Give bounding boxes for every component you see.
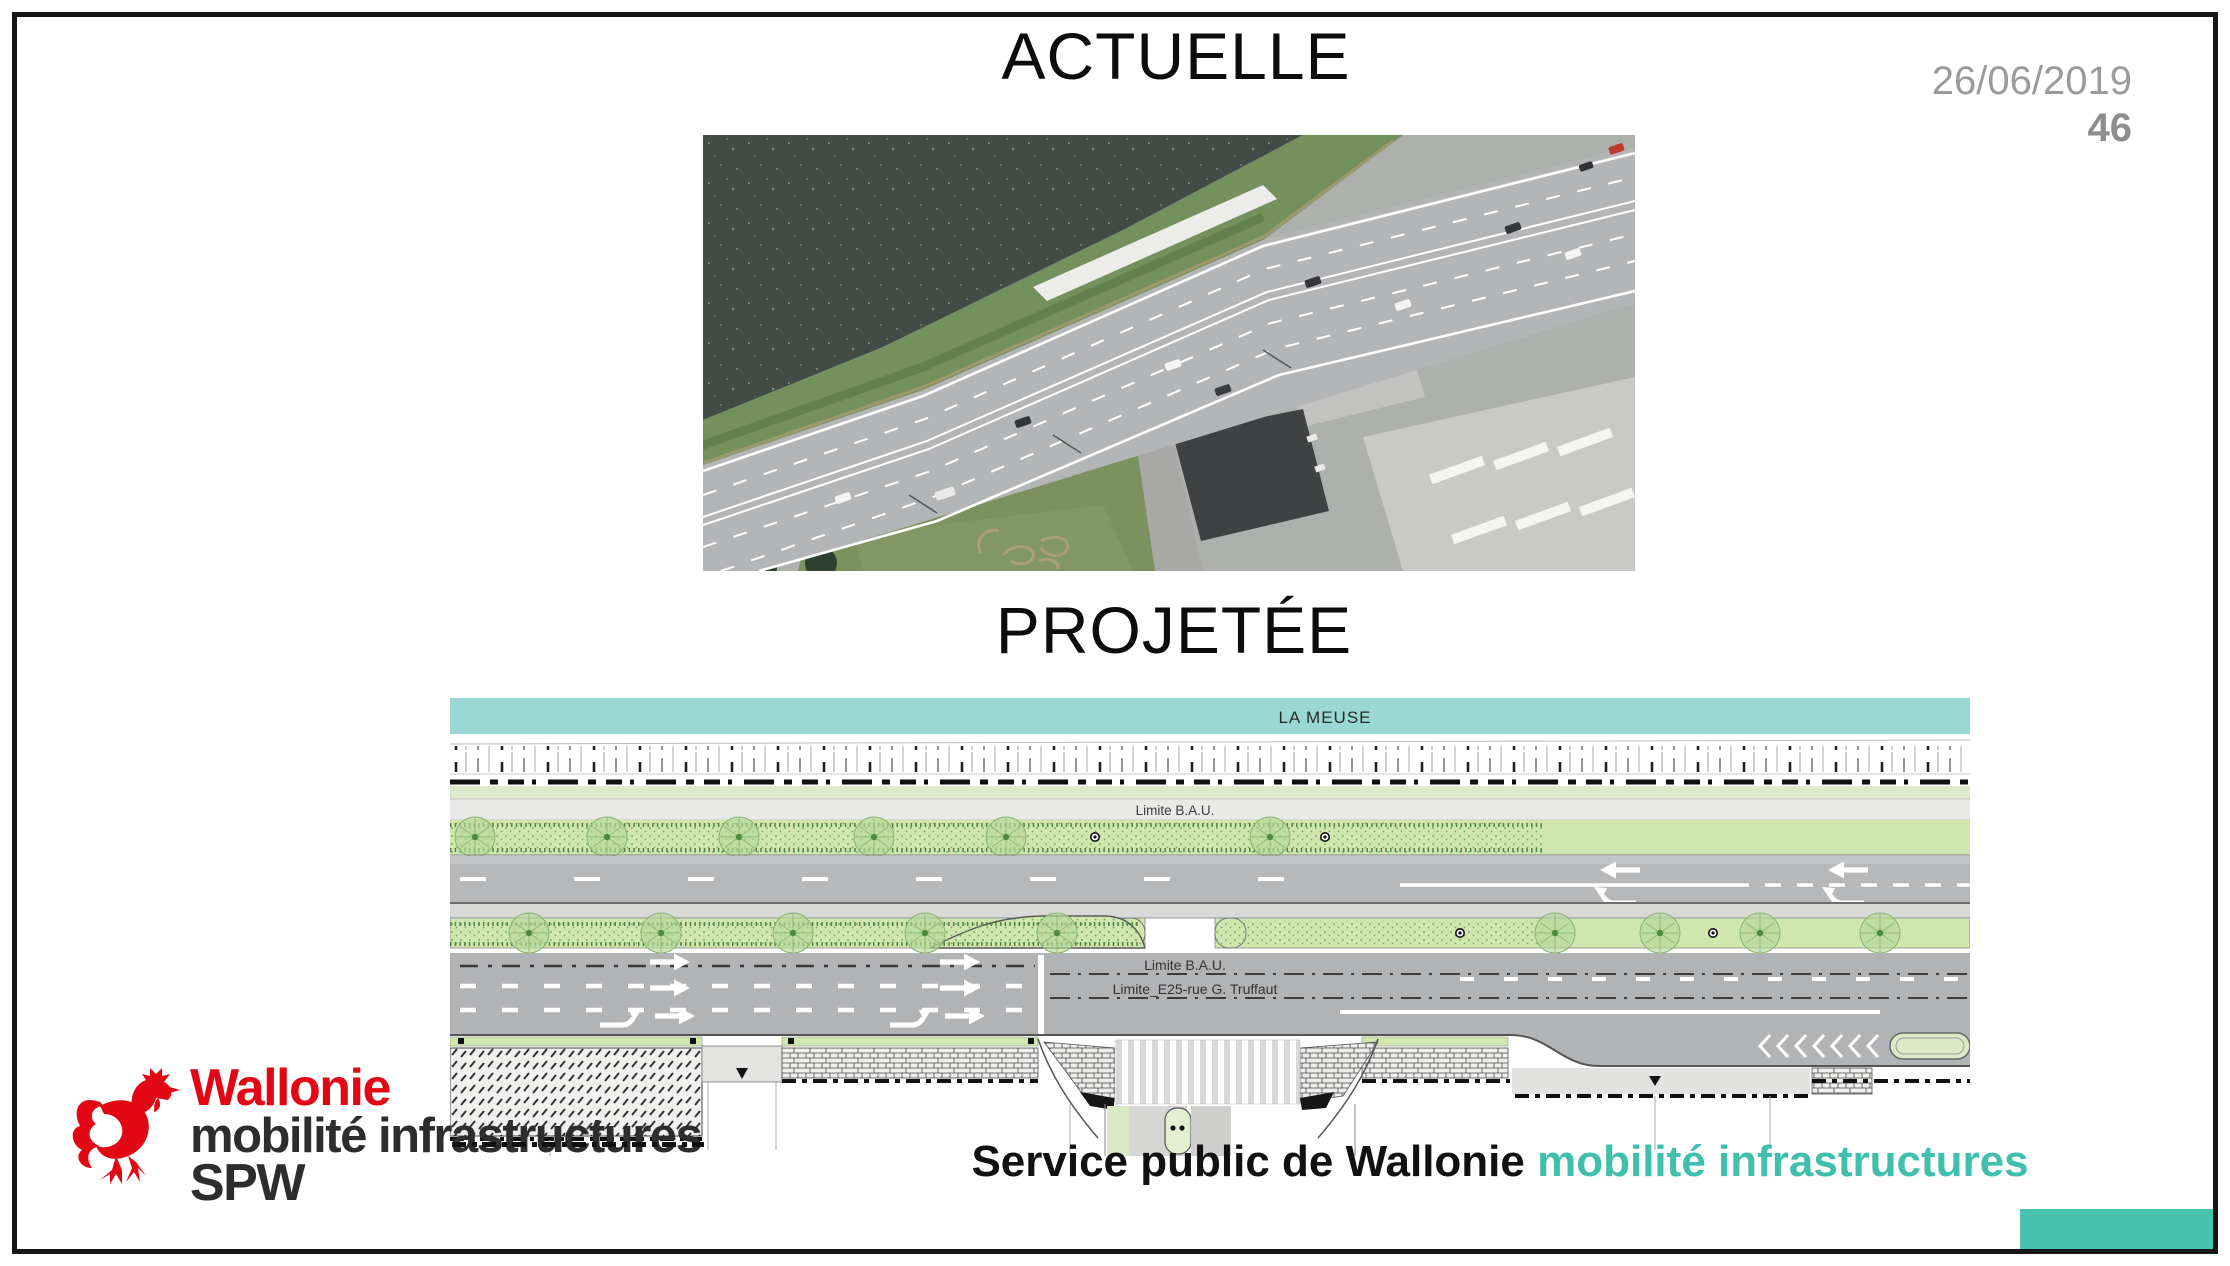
- logo-wallonie: Wallonie: [190, 1064, 701, 1113]
- slide: ACTUELLE 26/06/2019 46: [0, 0, 2230, 1266]
- aerial-photo-art: [703, 135, 1635, 571]
- accent-rectangle: [2020, 1209, 2213, 1249]
- spw-logo: Wallonie mobilité infrastructures SPW: [70, 1064, 701, 1208]
- slide-date: 26/06/2019: [1932, 58, 2132, 105]
- title-projetee: PROJETÉE: [674, 592, 1674, 668]
- river-band: [450, 698, 1970, 734]
- title-actuelle: ACTUELLE: [676, 18, 1676, 94]
- limit-bau-upper-label: Limite B.A.U.: [1136, 803, 1215, 818]
- crosswalk: [1115, 1040, 1300, 1104]
- date-block: 26/06/2019 46: [1932, 58, 2132, 152]
- footer-text-teal: mobilité infrastructures: [1537, 1137, 2028, 1186]
- wallonia-rooster-icon: [70, 1064, 182, 1186]
- footer: Service public de Wallonie mobilité infr…: [950, 1137, 2050, 1187]
- logo-mobilite-infrastructures: mobilité infrastructures: [190, 1113, 701, 1159]
- limit-bau-lower-label: Limite B.A.U.: [1144, 957, 1226, 973]
- logo-spw: SPW: [190, 1159, 701, 1208]
- limit-e25-label: Limite_E25-rue G. Truffaut: [1113, 981, 1278, 997]
- plan-boundary-dash-overlay: [452, 1142, 704, 1147]
- traffic-island: [1890, 1033, 1970, 1059]
- aerial-photo-current: [703, 135, 1635, 571]
- footer-text-black: Service public de Wallonie: [971, 1137, 1524, 1186]
- river-label: LA MEUSE: [1278, 708, 1371, 727]
- page-number: 46: [1932, 105, 2132, 152]
